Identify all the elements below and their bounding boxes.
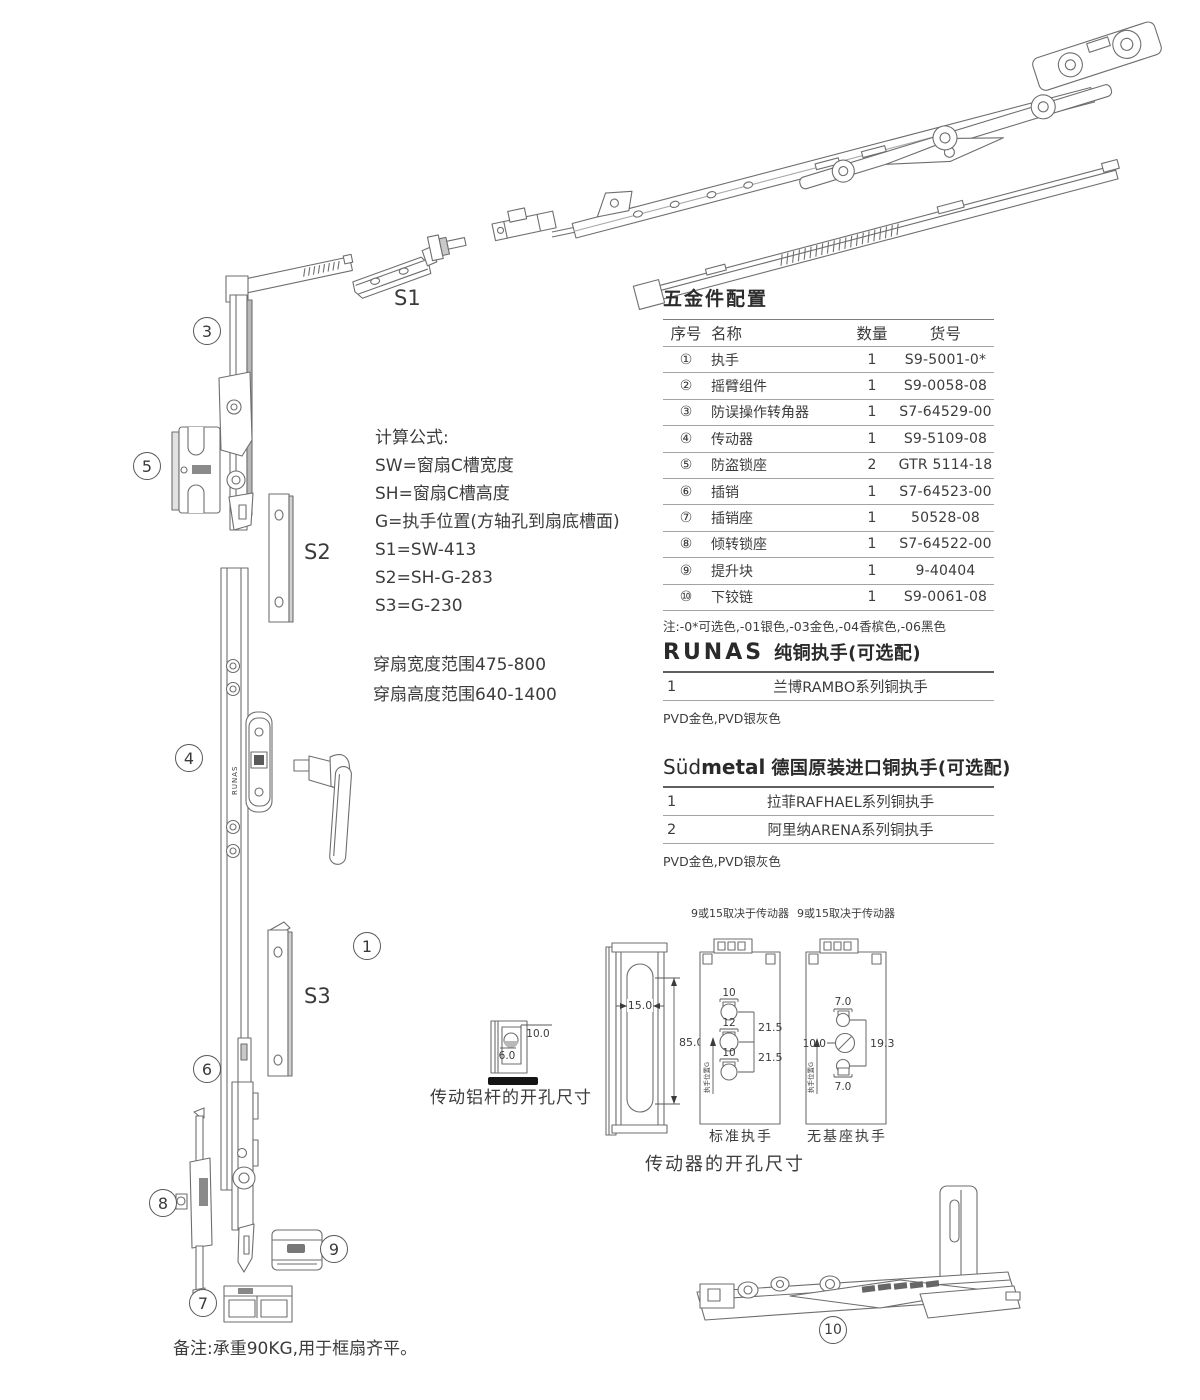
sudmetal-row-name: 拉菲RAFHAEL系列铜执手 [707, 791, 994, 812]
cell-name: 倾转锁座 [709, 534, 847, 554]
pin-piece-drawing [420, 230, 469, 267]
connector-drawing [490, 202, 556, 240]
cell-code: S9-5001-0* [897, 352, 994, 368]
runas-finishes: PVD金色,PVD银灰色 [663, 708, 994, 727]
cell-name: 传动器 [709, 429, 847, 449]
technical-line-art: RUNAS [0, 0, 1200, 1400]
alu-rod-drilling-drawing: 10.0 6.0 [488, 1021, 552, 1085]
sudmetal-brand-bold: metal [701, 755, 765, 779]
cell-qty: 1 [847, 404, 897, 420]
runas-brand: RUNAS [663, 640, 764, 665]
cell-seq: ⑨ [663, 563, 709, 579]
stay-arm-drawing [567, 67, 1095, 238]
cell-seq: ② [663, 378, 709, 394]
cell-qty: 1 [847, 536, 897, 552]
sudmetal-heading: Süd metal 德国原装进口铜执手(可选配) [663, 754, 994, 788]
part-label-5: 5 [133, 452, 161, 480]
runas-row: 1 兰博RAMBO系列铜执手 [663, 673, 994, 701]
sash-range-block: 穿扇宽度范围475-800 穿扇高度范围640-1400 [373, 650, 557, 710]
sudmetal-row: 1 拉菲RAFHAEL系列铜执手 [663, 788, 994, 816]
sash-height-range: 穿扇高度范围640-1400 [373, 680, 557, 710]
no-base-handle-drilling-drawing: 7.0 10.0 19.3 7.0 执手位置G [803, 939, 895, 1124]
cell-code: GTR 5114-18 [897, 457, 994, 473]
svg-text:15.0: 15.0 [628, 999, 653, 1012]
s3-label: S3 [304, 984, 331, 1008]
cell-qty: 1 [847, 352, 897, 368]
footer-note: 备注:承重90KG,用于框扇齐平。 [173, 1334, 417, 1359]
table-row: ⑥ 插销 1 S7-64523-00 [663, 479, 994, 505]
runas-heading: RUNAS 纯铜执手(可选配) [663, 639, 994, 673]
table-row: ③ 防误操作转角器 1 S7-64529-00 [663, 400, 994, 426]
cell-name: 防盗锁座 [709, 455, 847, 475]
formula-line: S3=G-230 [375, 592, 620, 620]
part-label-4: 4 [175, 744, 203, 772]
sudmetal-brand-light: Süd [663, 755, 701, 779]
part-label-8: 8 [149, 1189, 177, 1217]
formula-line: G=执手位置(方轴孔到扇底槽面) [375, 508, 620, 536]
table-row: ① 执手 1 S9-5001-0* [663, 347, 994, 373]
svg-text:21.5: 21.5 [758, 1021, 783, 1034]
cell-code: 50528-08 [897, 510, 994, 526]
formula-line: SW=窗扇C槽宽度 [375, 452, 620, 480]
header-code: 货号 [897, 322, 994, 344]
cell-qty: 1 [847, 431, 897, 447]
svg-text:21.5: 21.5 [758, 1051, 783, 1064]
hardware-table-title: 五金件配置 [663, 284, 994, 319]
part-label-10: 10 [819, 1316, 847, 1344]
formula-line: S2=SH-G-283 [375, 564, 620, 592]
table-row: ④ 传动器 1 S9-5109-08 [663, 426, 994, 452]
table-row: ⑤ 防盗锁座 2 GTR 5114-18 [663, 453, 994, 479]
catalog-page: { "doc": {"bg": "#ffffff", "ink": "#6e6e… [0, 0, 1200, 1400]
cell-qty: 1 [847, 510, 897, 526]
sudmetal-finishes: PVD金色,PVD银灰色 [663, 851, 994, 870]
cell-name: 下铰链 [709, 587, 847, 607]
part-5-keeper-drawing [172, 427, 220, 513]
cell-name: 插销 [709, 482, 847, 502]
alu-rod-drilling-caption: 传动铝杆的开孔尺寸 [430, 1083, 592, 1108]
svg-text:10.0: 10.0 [526, 1028, 549, 1040]
table-row: ⑩ 下铰链 1 S9-0061-08 [663, 585, 994, 611]
cell-code: 9-40404 [897, 563, 994, 579]
no-base-handle-top-note: 9或15取决于传动器 [797, 905, 895, 921]
cell-code: S9-0058-08 [897, 378, 994, 394]
part-1-handle-drawing [294, 755, 352, 865]
svg-text:执手位置G: 执手位置G [806, 1062, 815, 1093]
table-row: ⑧ 倾转锁座 1 S7-64522-00 [663, 532, 994, 558]
cell-code: S7-64529-00 [897, 404, 994, 420]
part-label-3: 3 [193, 317, 221, 345]
runas-handle-section: RUNAS 纯铜执手(可选配) 1 兰博RAMBO系列铜执手 PVD金色,PVD… [663, 639, 994, 727]
svg-text:12: 12 [722, 1017, 735, 1029]
table-header-row: 序号 名称 数量 货号 [663, 320, 994, 347]
svg-text:10.0: 10.0 [803, 1038, 826, 1050]
standard-handle-drilling-drawing: 10 12 10 21.5 21.5 执手位置G [700, 939, 783, 1124]
sudmetal-row: 2 阿里纳ARENA系列铜执手 [663, 816, 994, 844]
cell-name: 摇臂组件 [709, 376, 847, 396]
svg-text:10: 10 [722, 987, 735, 999]
s2-bar-drawing [269, 494, 293, 622]
cell-qty: 1 [847, 563, 897, 579]
table-row: ⑦ 插销座 1 50528-08 [663, 505, 994, 531]
cell-seq: ⑧ [663, 536, 709, 552]
cell-name: 防误操作转角器 [709, 402, 847, 422]
cell-qty: 1 [847, 589, 897, 605]
s1-label: S1 [394, 286, 421, 310]
s2-label: S2 [304, 540, 331, 564]
sudmetal-row-no: 2 [663, 822, 707, 838]
cell-seq: ⑥ [663, 484, 709, 500]
part-label-6: 6 [193, 1055, 221, 1083]
svg-text:7.0: 7.0 [835, 996, 852, 1008]
formula-block: 计算公式: SW=窗扇C槽宽度 SH=窗扇C槽高度 G=执手位置(方轴孔到扇底槽… [375, 424, 620, 620]
header-seq: 序号 [663, 322, 709, 344]
runas-row-name: 兰博RAMBO系列铜执手 [707, 676, 994, 697]
part-10-bottom-hinge-drawing [697, 1186, 1020, 1320]
svg-text:执手位置G: 执手位置G [702, 1062, 711, 1093]
cell-seq: ⑩ [663, 589, 709, 605]
no-base-handle-caption: 无基座执手 [807, 1126, 887, 1146]
cell-seq: ① [663, 352, 709, 368]
profile-section-drawing: 15.0 85.0 [606, 943, 704, 1135]
s3-bar-drawing [268, 922, 292, 1076]
cell-name: 执手 [709, 350, 847, 370]
cell-name: 提升块 [709, 561, 847, 581]
cell-qty: 1 [847, 378, 897, 394]
part-label-9: 9 [320, 1235, 348, 1263]
svg-text:6.0: 6.0 [499, 1050, 516, 1062]
svg-text:7.0: 7.0 [835, 1081, 852, 1093]
cell-seq: ④ [663, 431, 709, 447]
hardware-table-grid: 序号 名称 数量 货号 ① 执手 1 S9-5001-0* ② 摇臂组件 1 S… [663, 319, 994, 611]
part-3-corner-drive-drawing [219, 254, 354, 530]
standard-handle-top-note: 9或15取决于传动器 [691, 905, 789, 921]
cell-code: S9-0061-08 [897, 589, 994, 605]
cell-qty: 2 [847, 457, 897, 473]
formula-line: S1=SW-413 [375, 536, 620, 564]
cell-name: 插销座 [709, 508, 847, 528]
cell-code: S7-64522-00 [897, 536, 994, 552]
svg-text:10: 10 [722, 1047, 735, 1059]
cell-seq: ⑦ [663, 510, 709, 526]
bar-marking-text: RUNAS [231, 766, 239, 795]
top-hub-cluster-drawing [1031, 20, 1163, 92]
sudmetal-title: 德国原装进口铜执手(可选配) [771, 754, 1010, 780]
formula-title: 计算公式: [375, 424, 620, 452]
cell-seq: ⑤ [663, 457, 709, 473]
sudmetal-row-no: 1 [663, 794, 707, 810]
cell-code: S7-64523-00 [897, 484, 994, 500]
formula-line: SH=窗扇C槽高度 [375, 480, 620, 508]
runas-row-no: 1 [663, 679, 707, 695]
cell-seq: ③ [663, 404, 709, 420]
header-name: 名称 [709, 322, 847, 344]
svg-text:19.3: 19.3 [870, 1037, 895, 1050]
runas-title: 纯铜执手(可选配) [774, 639, 921, 665]
table-row: ⑨ 提升块 1 9-40404 [663, 558, 994, 584]
sudmetal-handle-section: Süd metal 德国原装进口铜执手(可选配) 1 拉菲RAFHAEL系列铜执… [663, 754, 994, 870]
part-9-lifting-block-drawing [272, 1230, 322, 1270]
sudmetal-row-name: 阿里纳ARENA系列铜执手 [707, 819, 994, 840]
exploded-arm-assembly-drawing [351, 20, 1163, 309]
part-label-1: 1 [353, 932, 381, 960]
standard-handle-caption: 标准执手 [709, 1126, 773, 1146]
driver-drilling-caption: 传动器的开孔尺寸 [645, 1150, 805, 1176]
table-row: ② 摇臂组件 1 S9-0058-08 [663, 373, 994, 399]
hardware-table: 五金件配置 序号 名称 数量 货号 ① 执手 1 S9-5001-0* ② 摇臂… [663, 284, 994, 635]
left-parts-drawing: RUNAS [172, 254, 354, 1322]
cell-qty: 1 [847, 484, 897, 500]
cell-code: S9-5109-08 [897, 431, 994, 447]
sash-width-range: 穿扇宽度范围475-800 [373, 650, 557, 680]
part-8-tilt-keeper-drawing [176, 1108, 212, 1299]
header-qty: 数量 [847, 322, 897, 344]
color-options-note: 注:-0*可选色,-01银色,-03金色,-04香槟色,-06黑色 [663, 616, 994, 635]
part-label-7: 7 [189, 1289, 217, 1317]
part-7-bolt-keeper-drawing [224, 1286, 292, 1322]
